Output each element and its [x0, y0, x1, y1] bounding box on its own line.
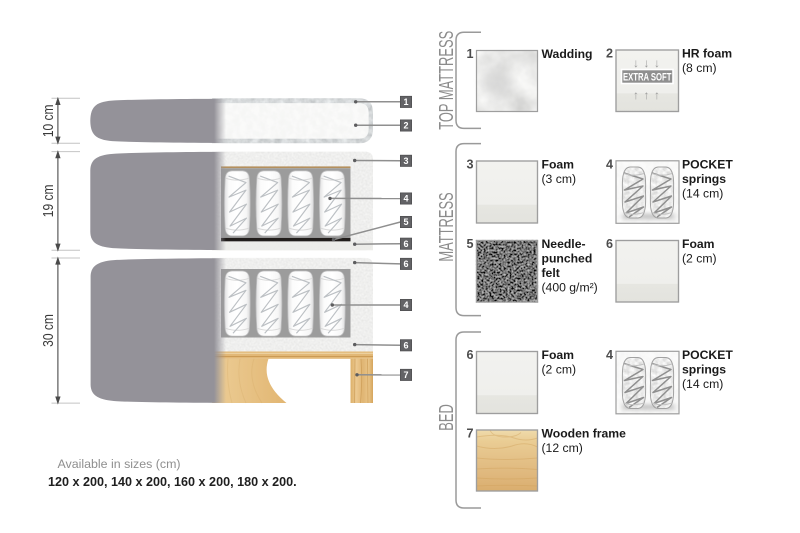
svg-text:7: 7 [403, 370, 408, 380]
svg-text:felt: felt [542, 266, 560, 280]
svg-text:↓: ↓ [654, 56, 660, 70]
svg-text:Foam: Foam [542, 348, 575, 362]
svg-text:6: 6 [606, 237, 613, 251]
svg-text:6: 6 [403, 239, 408, 249]
svg-text:1: 1 [403, 97, 408, 107]
svg-text:↑: ↑ [654, 88, 660, 102]
svg-text:(14 cm): (14 cm) [682, 377, 723, 391]
svg-text:10 cm: 10 cm [40, 104, 57, 137]
svg-text:HR foam: HR foam [682, 47, 732, 61]
svg-text:↓: ↓ [633, 56, 639, 70]
svg-text:TOP MATTRESS: TOP MATTRESS [434, 31, 458, 130]
svg-text:120 x 200, 140 x 200, 160 x 20: 120 x 200, 140 x 200, 160 x 200, 180 x 2… [48, 475, 297, 489]
svg-text:(12 cm): (12 cm) [542, 441, 583, 455]
svg-text:5: 5 [466, 237, 473, 251]
svg-text:Wooden frame: Wooden frame [542, 427, 627, 441]
svg-text:4: 4 [606, 158, 613, 172]
svg-text:(400 g/m²): (400 g/m²) [542, 280, 598, 294]
svg-text:BED: BED [434, 404, 458, 431]
svg-text:Needle-: Needle- [542, 237, 586, 251]
svg-text:2: 2 [403, 121, 408, 131]
svg-text:POCKET: POCKET [682, 158, 733, 172]
svg-text:4: 4 [606, 348, 613, 362]
svg-text:6: 6 [466, 348, 473, 362]
svg-text:↑: ↑ [633, 88, 639, 102]
svg-text:6: 6 [403, 259, 408, 269]
svg-text:3: 3 [466, 158, 473, 172]
svg-text:punched: punched [542, 252, 593, 266]
svg-text:↑: ↑ [644, 88, 650, 102]
svg-text:(2 cm): (2 cm) [542, 363, 577, 377]
svg-text:springs: springs [682, 362, 726, 376]
svg-text:5: 5 [403, 217, 408, 227]
svg-text:7: 7 [466, 427, 473, 441]
svg-text:Foam: Foam [682, 237, 715, 251]
svg-text:4: 4 [403, 194, 408, 204]
svg-text:19 cm: 19 cm [40, 185, 57, 218]
svg-text:springs: springs [682, 172, 726, 186]
svg-text:Available in sizes (cm): Available in sizes (cm) [58, 457, 181, 471]
svg-text:EXTRA SOFT: EXTRA SOFT [623, 71, 672, 84]
svg-text:Wadding: Wadding [542, 47, 593, 61]
svg-text:3: 3 [403, 156, 408, 166]
svg-text:1: 1 [466, 47, 473, 61]
svg-text:4: 4 [403, 300, 408, 310]
svg-text:MATTRESS: MATTRESS [434, 192, 458, 261]
svg-text:30 cm: 30 cm [40, 314, 57, 347]
svg-text:POCKET: POCKET [682, 348, 733, 362]
svg-text:2: 2 [606, 47, 613, 61]
svg-text:Foam: Foam [542, 158, 575, 172]
svg-text:(3 cm): (3 cm) [542, 172, 577, 186]
svg-text:↓: ↓ [644, 56, 650, 70]
svg-text:(2 cm): (2 cm) [682, 252, 717, 266]
svg-text:(8 cm): (8 cm) [682, 61, 717, 75]
svg-text:(14 cm): (14 cm) [682, 186, 723, 200]
svg-text:6: 6 [403, 341, 408, 351]
